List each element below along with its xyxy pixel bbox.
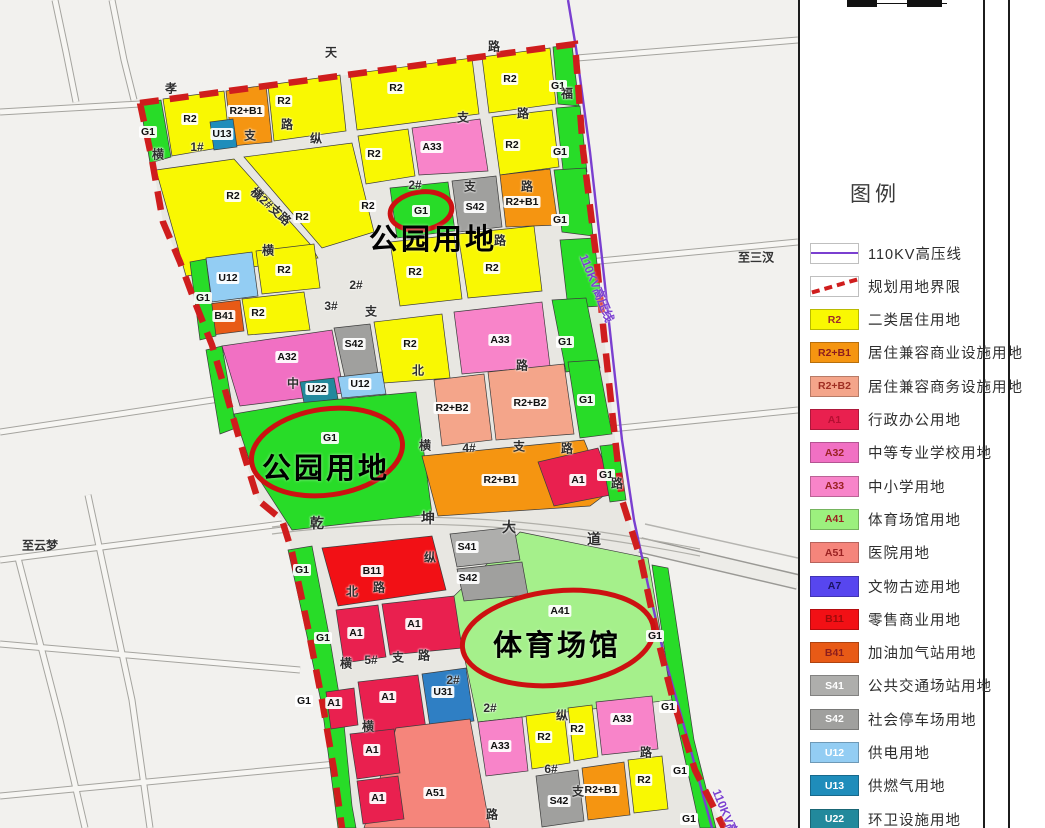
scale-bar [847, 0, 947, 8]
legend-label: 文物古迹用地 [868, 576, 961, 597]
legend-label: 公共交通场站用地 [868, 675, 992, 696]
legend-swatch: A1 [810, 409, 859, 430]
legend-code: B11 [825, 613, 844, 625]
legend-item: B41加油加气站用地 [810, 638, 977, 668]
legend-label: 规划用地界限 [868, 276, 961, 297]
legend-label: 医院用地 [868, 542, 930, 563]
planning-map-page: G1R2U13R2+B1R2R2R2G1R2R2R2R2A33R2G1G1S42… [0, 0, 1045, 828]
legend-code: U22 [825, 813, 844, 825]
legend-title: 图例 [850, 178, 900, 208]
legend-swatch: R2 [810, 309, 859, 330]
legend-label: 供电用地 [868, 742, 930, 763]
legend-code: A51 [825, 547, 844, 559]
legend-item: R2+B2居住兼容商务设施用地 [810, 371, 1023, 401]
legend-code: U13 [825, 780, 844, 792]
legend-code: R2 [828, 314, 841, 326]
legend-item: A33中小学用地 [810, 471, 946, 501]
legend-swatch: B11 [810, 609, 859, 630]
legend-code: A33 [825, 480, 844, 492]
legend-swatch: U13 [810, 775, 859, 796]
legend-swatch: R2+B1 [810, 342, 859, 363]
legend-label: 零售商业用地 [868, 609, 961, 630]
legend-swatch [810, 276, 859, 297]
legend-swatch: B41 [810, 642, 859, 663]
legend-label: 二类居住用地 [868, 309, 961, 330]
legend-item: A41体育场馆用地 [810, 504, 961, 534]
boundary-dash-symbol [811, 278, 857, 295]
legend-label: 体育场馆用地 [868, 509, 961, 530]
legend-swatch: A32 [810, 442, 859, 463]
legend-swatch: A33 [810, 476, 859, 497]
legend-code: A41 [825, 513, 844, 525]
legend-label: 行政办公用地 [868, 409, 961, 430]
legend-swatch: R2+B2 [810, 376, 859, 397]
legend-code: S42 [825, 713, 844, 725]
page-edge-line [1008, 0, 1010, 828]
legend-item: U12供电用地 [810, 738, 930, 768]
legend-code: B41 [825, 647, 844, 659]
legend-item: R2+B1居住兼容商业设施用地 [810, 338, 1023, 368]
legend-item: B11零售商业用地 [810, 604, 961, 634]
legend-item: U13供燃气用地 [810, 771, 946, 801]
legend-label: 中等专业学校用地 [868, 442, 992, 463]
legend-item: A1行政办公用地 [810, 405, 961, 435]
legend-swatch: S42 [810, 709, 859, 730]
legend-item: 110KV高压线 [810, 238, 962, 268]
legend-code: A1 [828, 414, 841, 426]
legend-code: A7 [828, 580, 841, 592]
legend-swatch: A51 [810, 542, 859, 563]
legend-label: 居住兼容商务设施用地 [868, 376, 1023, 397]
legend-label: 110KV高压线 [868, 243, 962, 264]
legend-code: R2+B1 [818, 347, 851, 359]
legend-swatch: U22 [810, 809, 859, 828]
legend-label: 供燃气用地 [868, 775, 946, 796]
map-canvas [0, 0, 798, 828]
legend-code: R2+B2 [818, 380, 851, 392]
legend-label: 社会停车场用地 [868, 709, 977, 730]
legend-swatch: U12 [810, 742, 859, 763]
legend-swatch: A7 [810, 576, 859, 597]
legend-code: U12 [825, 747, 844, 759]
legend-label: 加油加气站用地 [868, 642, 977, 663]
legend-item: A32中等专业学校用地 [810, 438, 992, 468]
legend-label: 环卫设施用地 [868, 809, 961, 828]
legend-item: A51医院用地 [810, 538, 930, 568]
legend-swatch: S41 [810, 675, 859, 696]
legend-code: A32 [825, 447, 844, 459]
legend-item: S42社会停车场用地 [810, 704, 977, 734]
legend-code: S41 [825, 680, 844, 692]
legend-label: 居住兼容商业设施用地 [868, 342, 1023, 363]
legend-label: 中小学用地 [868, 476, 946, 497]
legend-item: A7文物古迹用地 [810, 571, 961, 601]
legend-item: S41公共交通场站用地 [810, 671, 992, 701]
legend-swatch [810, 243, 859, 264]
legend-swatch: A41 [810, 509, 859, 530]
power-line-symbol [811, 252, 858, 254]
legend-item: 规划用地界限 [810, 271, 961, 301]
legend-panel: 图例 110KV高压线规划用地界限R2二类居住用地R2+B1居住兼容商业设施用地… [798, 0, 985, 828]
legend-item: R2二类居住用地 [810, 305, 961, 335]
land-use-map: G1R2U13R2+B1R2R2R2G1R2R2R2R2A33R2G1G1S42… [0, 0, 798, 828]
legend-item: U22环卫设施用地 [810, 804, 961, 828]
